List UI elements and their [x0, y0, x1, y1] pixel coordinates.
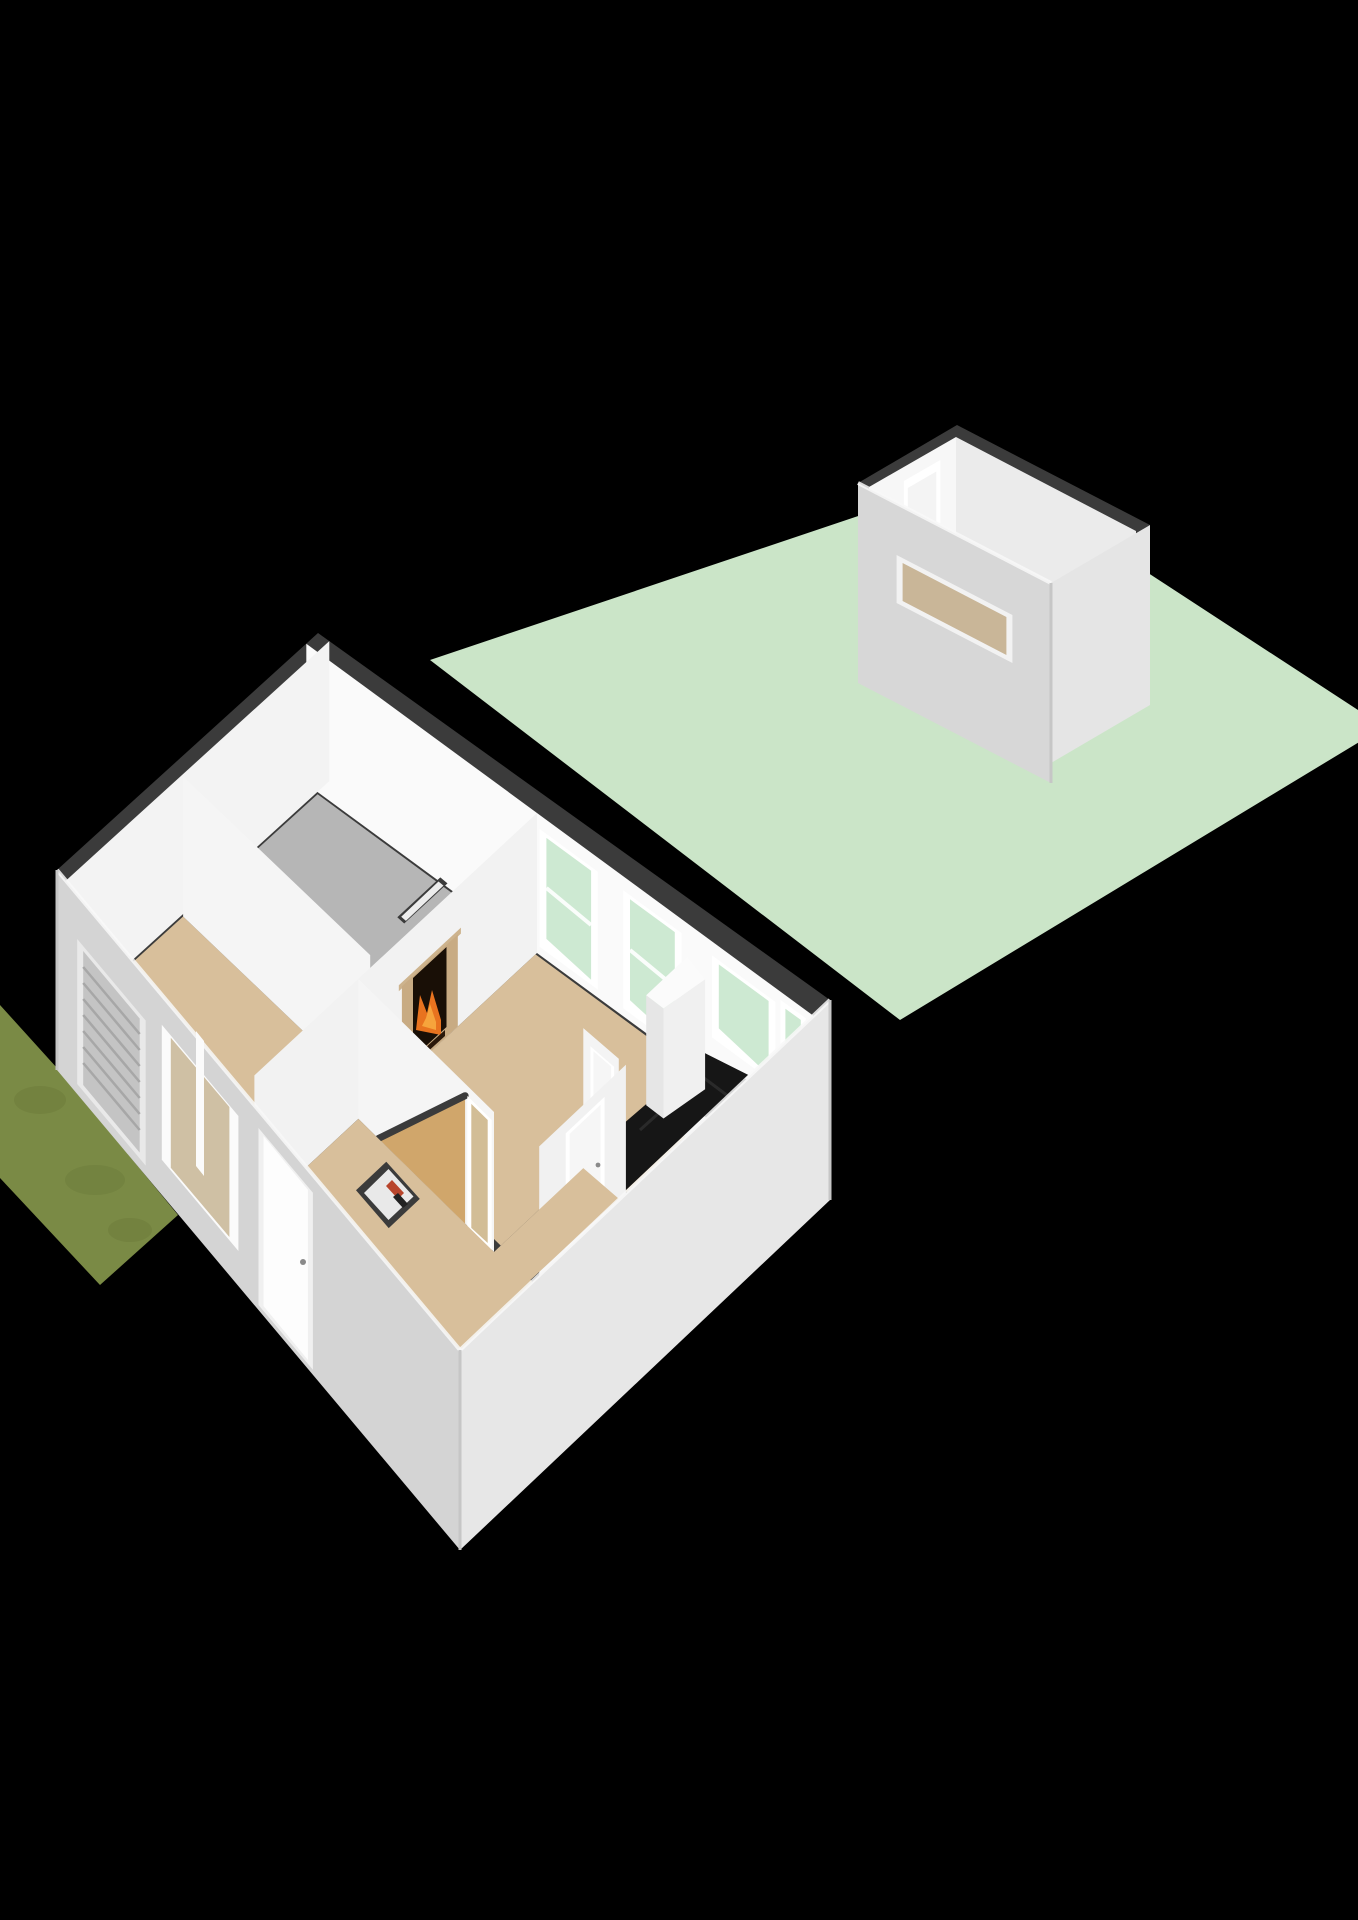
- window-mullion: [196, 1031, 204, 1176]
- door-handle: [596, 1163, 601, 1168]
- grass-texture: [14, 1086, 66, 1114]
- grass-texture: [65, 1165, 125, 1195]
- door-handle: [300, 1259, 306, 1265]
- cabinet-side: [646, 995, 663, 1118]
- glazed-door-glass: [471, 1104, 487, 1243]
- floorplan-3d-render: [0, 0, 1358, 1920]
- floorplan-canvas[interactable]: [0, 0, 1358, 1920]
- grass-texture: [108, 1218, 152, 1242]
